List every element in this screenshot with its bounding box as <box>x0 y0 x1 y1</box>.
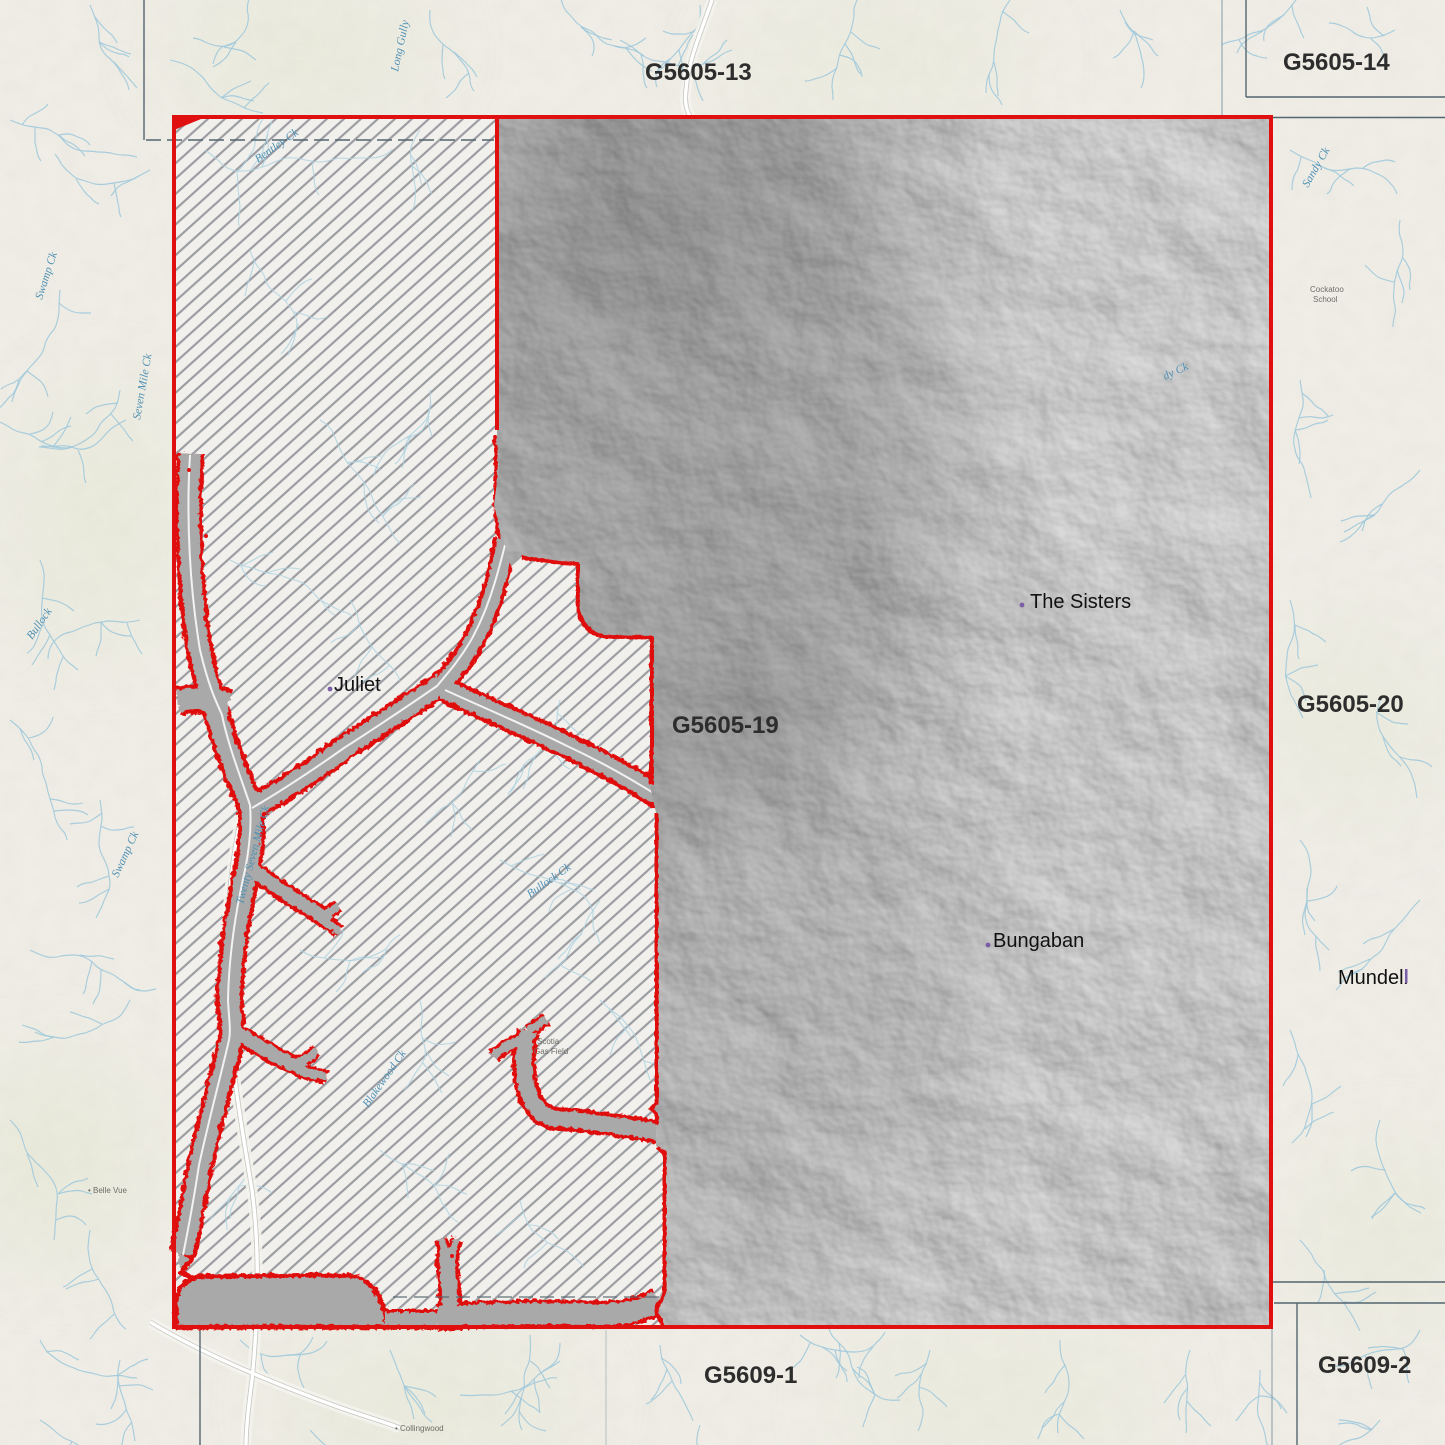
svg-text:G5605-14: G5605-14 <box>1283 49 1390 76</box>
svg-text:Mundell: Mundell <box>1338 967 1408 989</box>
svg-text:• Collingwood: • Collingwood <box>395 1424 444 1433</box>
svg-text:Bungaban: Bungaban <box>993 930 1084 952</box>
svg-text:Cockatoo: Cockatoo <box>1310 285 1344 294</box>
svg-text:G5609-1: G5609-1 <box>704 1362 797 1389</box>
svg-text:G5605-20: G5605-20 <box>1297 691 1404 718</box>
svg-text:Gas Field: Gas Field <box>534 1047 568 1056</box>
svg-text:G5605-13: G5605-13 <box>645 59 752 86</box>
svg-text:G5609-2: G5609-2 <box>1318 1352 1411 1379</box>
svg-text:G5605-19: G5605-19 <box>672 712 779 739</box>
svg-text:The Sisters: The Sisters <box>1030 591 1131 613</box>
svg-text:Juliet: Juliet <box>334 674 381 696</box>
svg-text:Scotia: Scotia <box>537 1037 560 1046</box>
svg-text:• Belle Vue: • Belle Vue <box>88 1186 128 1195</box>
svg-text:School: School <box>1313 295 1338 304</box>
